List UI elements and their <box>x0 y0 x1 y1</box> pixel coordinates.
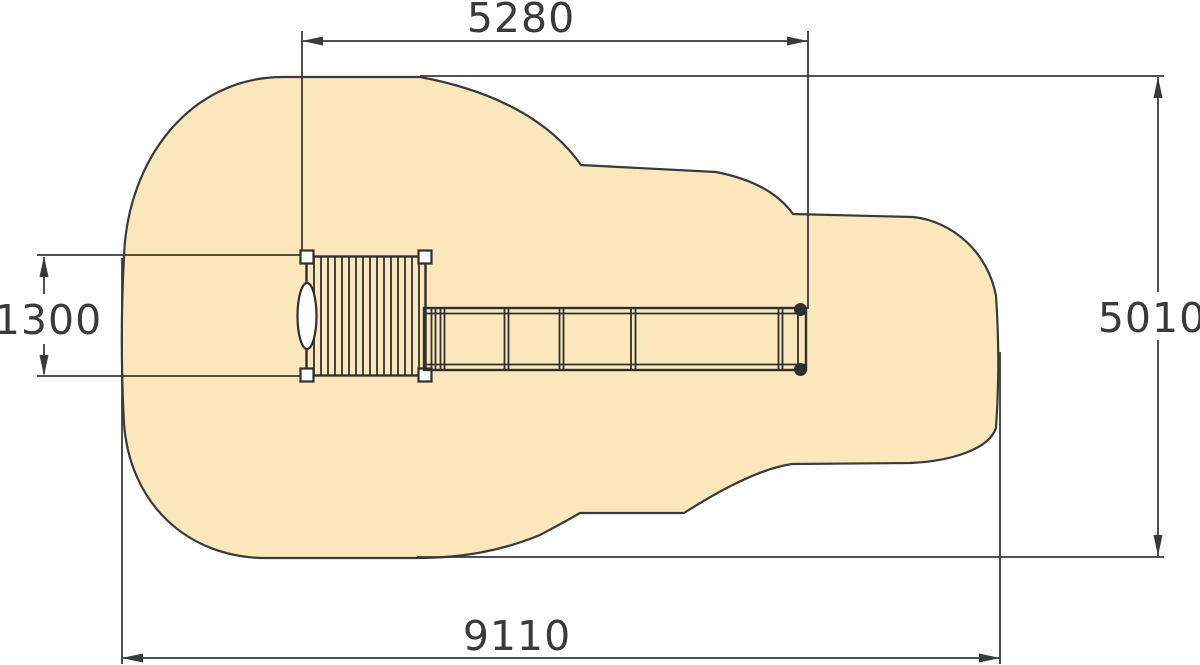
dimension-label-top: 5280 <box>467 0 575 42</box>
arrowhead-left <box>122 654 143 663</box>
dimension-label-left: 1300 <box>0 296 102 344</box>
post-bottom-left <box>301 369 314 382</box>
dimension-label-right: 5010 <box>1098 294 1200 342</box>
arrowhead-up <box>1154 77 1163 98</box>
slide-end-post-top <box>794 303 807 316</box>
arrowhead-right <box>979 654 1000 663</box>
arrowhead-down <box>1154 535 1163 556</box>
post-top-left <box>301 251 314 264</box>
arrowhead-up <box>40 256 49 277</box>
slide-end-post-bottom <box>794 363 807 376</box>
playground-plan-svg: 5280 5010 9110 1300 <box>0 0 1200 665</box>
post-top-right <box>419 251 432 264</box>
arrowhead-right <box>787 37 808 46</box>
dimension-label-bottom: 9110 <box>463 612 571 660</box>
platform-entry-oval <box>298 283 317 349</box>
arrowhead-left <box>302 37 323 46</box>
arrowhead-down <box>40 355 49 376</box>
plan-drawing-canvas: 5280 5010 9110 1300 <box>0 0 1200 665</box>
